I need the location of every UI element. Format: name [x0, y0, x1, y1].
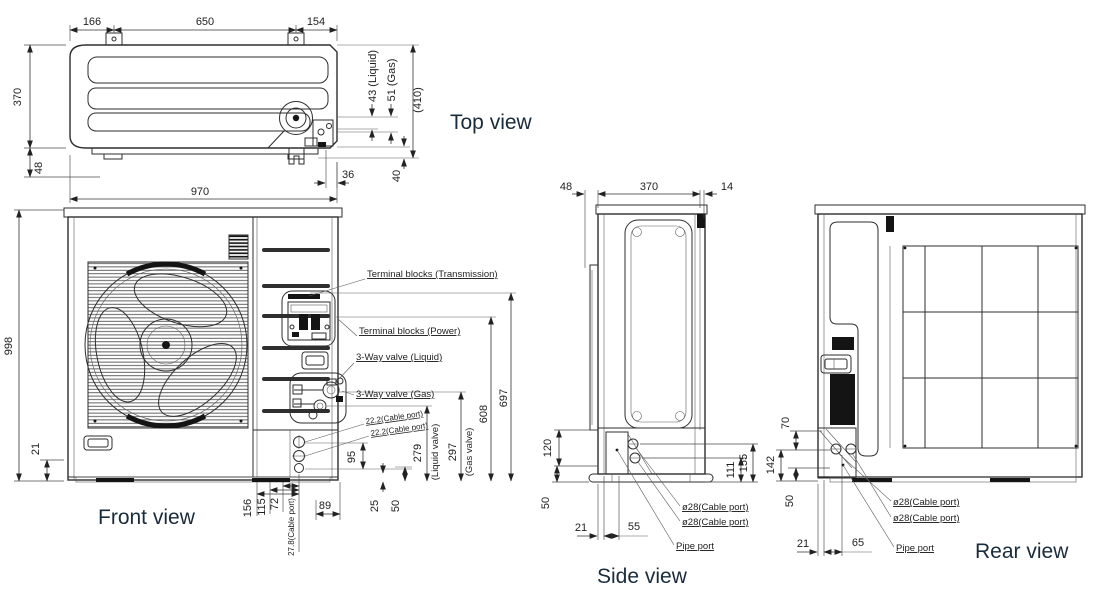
dim-142: 142: [765, 456, 777, 474]
callout-3way-liquid: 3-Way valve (Liquid): [356, 352, 442, 363]
top-view-cabinet-outline: [70, 45, 337, 148]
dim-50: 50: [784, 495, 796, 507]
front-handle: [302, 352, 328, 369]
front-view-label: Front view: [98, 506, 196, 529]
dim-50: 50: [540, 497, 552, 509]
dim-370: 370: [640, 181, 658, 193]
top-view-slat: [88, 113, 310, 131]
foot: [990, 478, 1030, 482]
dim-14: 14: [721, 181, 733, 193]
dim-410: (410): [412, 87, 424, 113]
front-top-panel: [64, 208, 342, 217]
dim-43-liquid: 43 (Liquid): [367, 50, 379, 102]
dim-156: 156: [242, 499, 254, 517]
dim-370: 370: [12, 88, 24, 106]
callout-terminal-power: Terminal blocks (Power): [359, 326, 460, 337]
dimensional-drawing: 166 650 154 370 48 970 43 (Liquid) 51 (G…: [0, 0, 1104, 600]
callout-cable-port: ø28(Cable port): [682, 502, 749, 513]
dim-48: 48: [33, 162, 45, 174]
dim-70: 70: [780, 417, 792, 429]
top-view-slat: [88, 57, 328, 83]
rear-handle: [821, 355, 851, 373]
service-box-side: [606, 432, 628, 474]
dim-48: 48: [560, 181, 572, 193]
coil-tab: [886, 216, 894, 232]
fan-grille: [85, 262, 249, 429]
port-knockout-large: [830, 374, 855, 425]
drawing-canvas: 166 650 154 370 48 970 43 (Liquid) 51 (G…: [0, 0, 1104, 600]
dim-279-note: (Liquid valve): [430, 424, 441, 481]
top-view: 166 650 154 370 48 970 43 (Liquid) 51 (G…: [12, 16, 533, 203]
foot: [852, 478, 892, 482]
dim-297-note: (Gas valve): [464, 428, 475, 477]
side-view: 48 370 14 120 50 21 55 111 155 ø28(Cable…: [540, 181, 758, 588]
dim-21: 21: [797, 538, 809, 550]
callout-cable-port: ø28(Cable port): [682, 517, 749, 528]
rear-top-panel: [815, 205, 1085, 214]
front-view: 998 21 697 608 297 (Gas valve) 279 (Liqu…: [3, 208, 516, 556]
dim-166: 166: [83, 16, 101, 28]
dim-650: 650: [196, 16, 214, 28]
coil-grid: [903, 246, 1078, 448]
vent-grille: [229, 235, 248, 259]
gas-valve: [323, 382, 339, 398]
top-view-bracket: [289, 148, 304, 164]
side-view-label: Side view: [597, 565, 688, 588]
foot: [252, 478, 290, 482]
dim-21: 21: [30, 443, 42, 455]
side-panel: [625, 220, 692, 428]
terminal-blocks: [282, 291, 335, 346]
dim-154: 154: [307, 16, 325, 28]
foot: [96, 478, 134, 482]
fan-hub: [162, 341, 170, 349]
fan-motor-top: [280, 102, 313, 135]
dim-27-8-cable-port: 27.8(Cable port): [287, 498, 296, 556]
dim-297: 297: [447, 443, 459, 461]
dim-155: 155: [738, 454, 750, 472]
dim-279: 279: [412, 444, 424, 462]
callout-pipe-port: Pipe port: [896, 543, 934, 554]
top-view-foot: [104, 154, 122, 159]
dim-970: 970: [191, 186, 209, 198]
dim-998: 998: [3, 337, 15, 355]
dim-21: 21: [575, 522, 587, 534]
rear-view: 70 142 50 21 65 ø28(Cable port) ø28(Cabl…: [765, 205, 1085, 563]
dim-89: 89: [319, 500, 331, 512]
dim-40: 40: [391, 170, 403, 182]
dim-115: 115: [256, 498, 268, 516]
dim-111: 111: [725, 462, 737, 479]
side-foot: [589, 474, 713, 482]
dim-55: 55: [628, 521, 640, 533]
grille-bulge: [590, 265, 598, 430]
callout-pipe-port: Pipe port: [676, 541, 714, 552]
cable-ports-front: [292, 435, 306, 473]
dim-120: 120: [542, 439, 554, 457]
callout-cable-port: ø28(Cable port): [893, 497, 960, 508]
dim-25: 25: [369, 500, 381, 512]
side-louvers: [262, 248, 330, 413]
callout-terminal-transmission: Terminal blocks (Transmission): [367, 269, 498, 280]
rear-view-label: Rear view: [975, 540, 1069, 563]
top-view-label: Top view: [450, 111, 533, 134]
top-view-slat: [88, 88, 328, 109]
dim-50: 50: [390, 500, 402, 512]
callout-cable-port: ø28(Cable port): [893, 513, 960, 524]
dim-65: 65: [852, 537, 864, 549]
front-handle-lower: [84, 436, 112, 450]
dim-608: 608: [478, 405, 490, 423]
port-knockout: [832, 337, 854, 350]
callout-3way-gas: 3-Way valve (Gas): [356, 389, 434, 400]
top-view-base: [92, 148, 318, 154]
dim-697: 697: [498, 389, 510, 407]
dim-95: 95: [346, 451, 358, 463]
side-top-panel: [596, 205, 707, 214]
dim-36: 36: [342, 169, 354, 181]
side-cabinet-outline: [598, 214, 705, 474]
dim-51-gas: 51 (Gas): [386, 59, 398, 102]
dim-72: 72: [269, 498, 281, 510]
